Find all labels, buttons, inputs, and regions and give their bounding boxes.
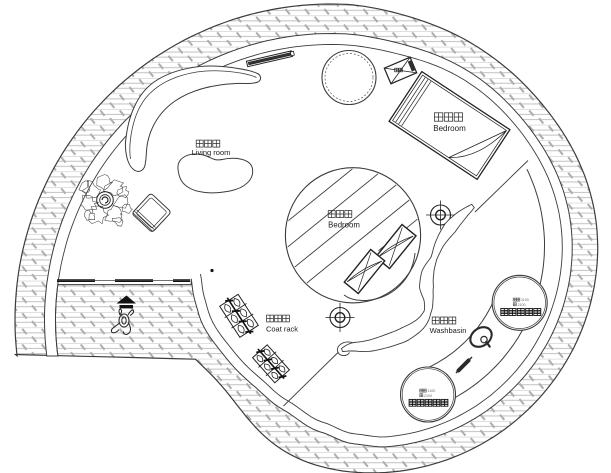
svg-text:2100: 2100 xyxy=(518,303,526,307)
svg-text:1100: 1100 xyxy=(428,389,436,393)
svg-text:Bedroom: Bedroom xyxy=(433,124,466,133)
svg-text:Washbasin: Washbasin xyxy=(430,326,467,335)
svg-text:Coat rack: Coat rack xyxy=(266,325,298,334)
svg-text:Living room: Living room xyxy=(192,148,231,157)
svg-text:Bedroom: Bedroom xyxy=(328,221,360,230)
svg-text:1100: 1100 xyxy=(521,298,529,302)
svg-text:2100: 2100 xyxy=(424,394,432,398)
